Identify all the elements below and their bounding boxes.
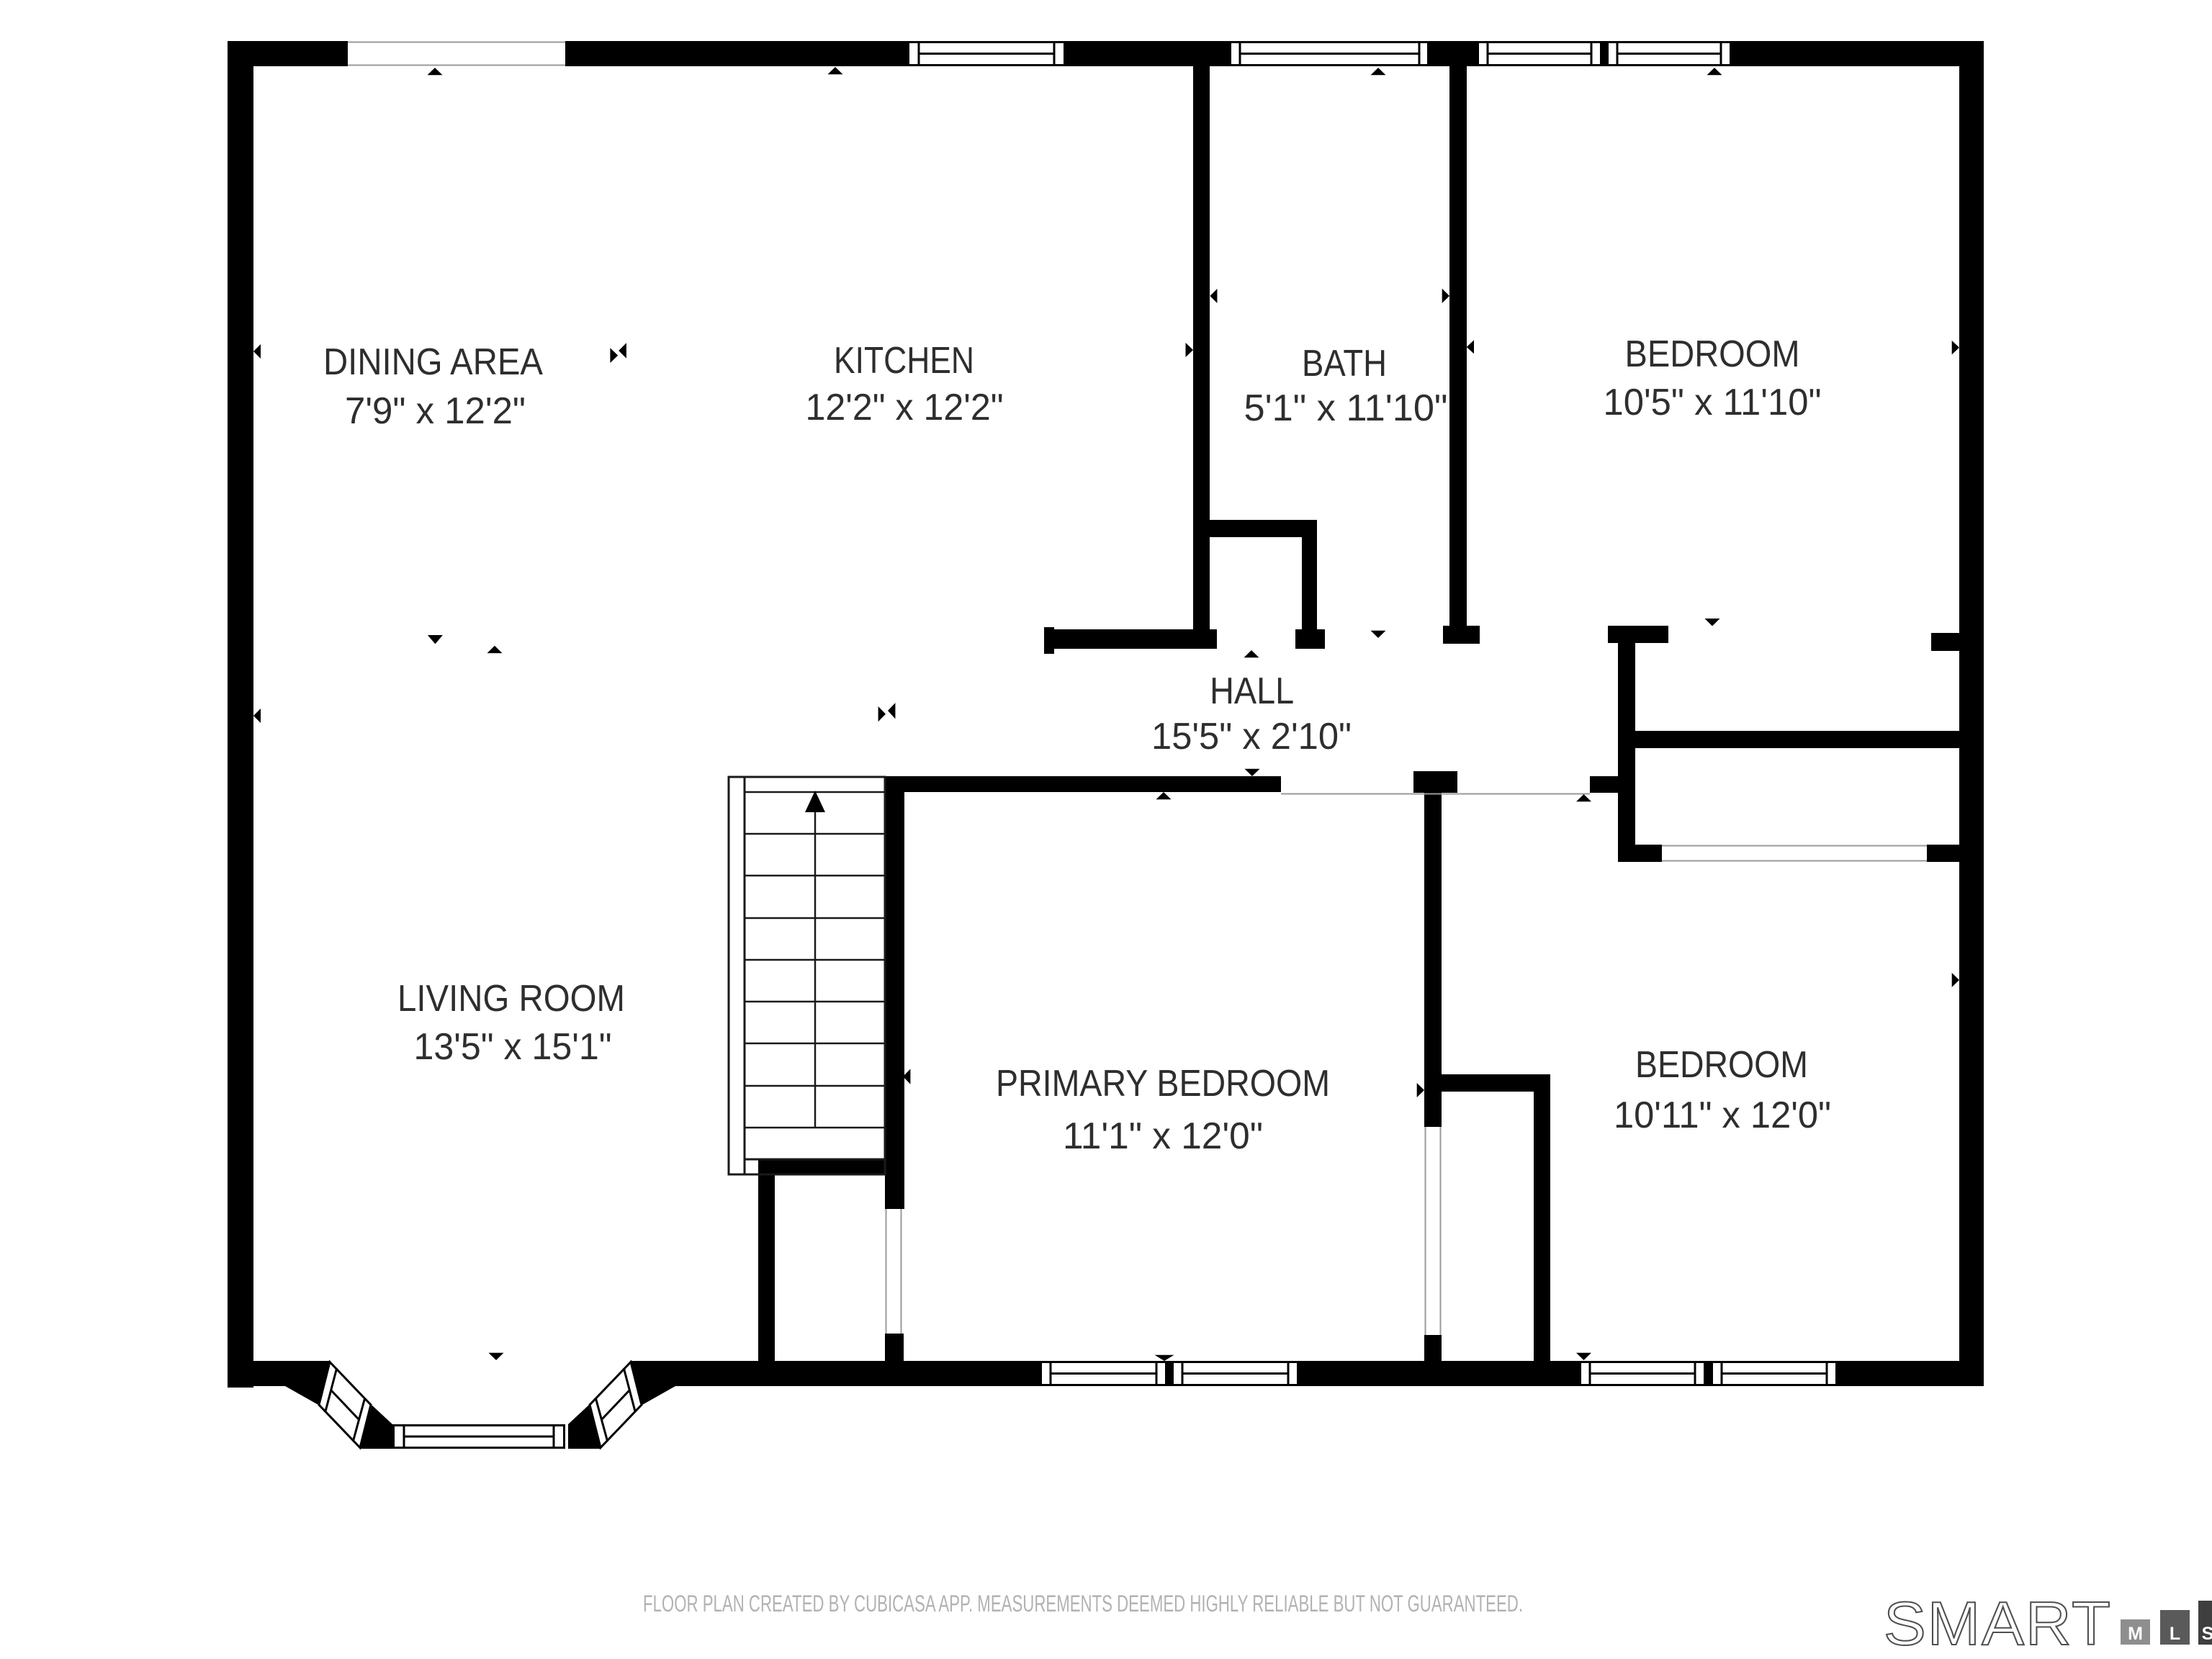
svg-text:15'5" x 2'10": 15'5" x 2'10" — [1151, 716, 1352, 757]
svg-text:10'11" x 12'0": 10'11" x 12'0" — [1614, 1094, 1831, 1136]
svg-text:KITCHEN: KITCHEN — [834, 340, 974, 382]
svg-text:M: M — [2128, 1624, 2143, 1644]
svg-text:7'9" x 12'2": 7'9" x 12'2" — [345, 390, 526, 432]
svg-text:13'5" x 15'1": 13'5" x 15'1" — [414, 1026, 612, 1068]
svg-text:S: S — [2202, 1624, 2212, 1644]
svg-text:5'1" x 11'10": 5'1" x 11'10" — [1244, 387, 1448, 429]
svg-text:12'2" x 12'2": 12'2" x 12'2" — [806, 387, 1004, 428]
svg-text:PRIMARY BEDROOM: PRIMARY BEDROOM — [996, 1063, 1330, 1105]
svg-text:HALL: HALL — [1210, 670, 1294, 712]
svg-text:DINING AREA: DINING AREA — [323, 341, 543, 383]
svg-text:11'1" x 12'0": 11'1" x 12'0" — [1063, 1115, 1263, 1157]
svg-text:SMART: SMART — [1884, 1590, 2112, 1658]
svg-text:L: L — [2170, 1624, 2180, 1644]
svg-text:BEDROOM: BEDROOM — [1625, 333, 1800, 375]
svg-text:BEDROOM: BEDROOM — [1635, 1044, 1808, 1086]
svg-text:FLOOR PLAN CREATED BY CUBICASA: FLOOR PLAN CREATED BY CUBICASA APP. MEAS… — [643, 1591, 1523, 1617]
svg-text:10'5" x 11'10": 10'5" x 11'10" — [1604, 382, 1822, 423]
svg-text:LIVING ROOM: LIVING ROOM — [397, 978, 625, 1020]
svg-text:BATH: BATH — [1302, 343, 1387, 385]
